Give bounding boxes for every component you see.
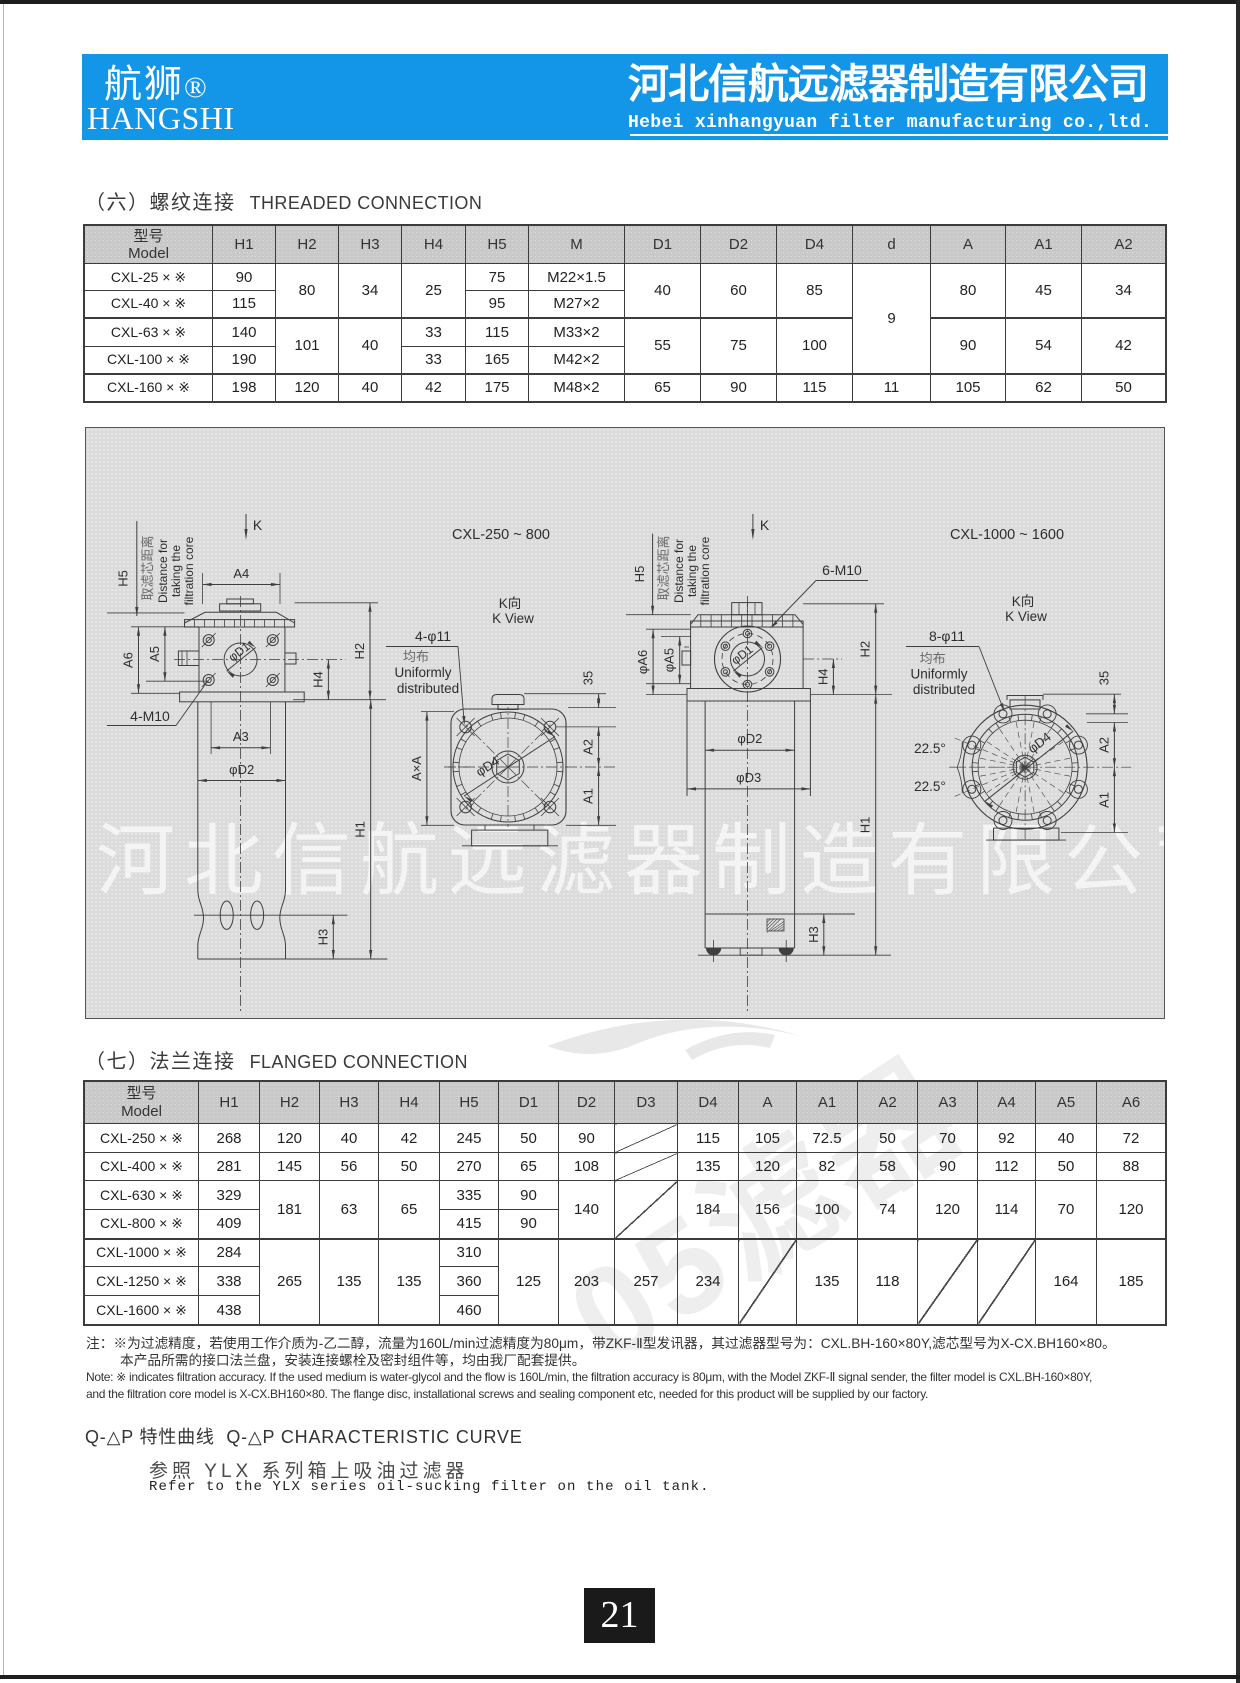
svg-text:A5: A5 (147, 646, 162, 662)
svg-text:A4: A4 (233, 566, 249, 581)
svg-text:Distance for: Distance for (156, 539, 170, 603)
svg-text:K View: K View (1005, 609, 1047, 624)
svg-text:均布: 均布 (920, 651, 946, 666)
svg-text:φD3: φD3 (736, 770, 761, 785)
svg-text:φD2: φD2 (737, 731, 762, 746)
svg-text:A1: A1 (581, 788, 596, 804)
svg-text:Distance for: Distance for (672, 539, 686, 603)
svg-text:A1: A1 (1096, 792, 1111, 808)
svg-text:H4: H4 (310, 671, 325, 688)
svg-text:taking the: taking the (169, 545, 183, 597)
svg-text:φD4: φD4 (1025, 729, 1054, 756)
svg-text:H5: H5 (632, 566, 647, 583)
svg-text:4-M10: 4-M10 (130, 708, 170, 724)
svg-text:H2: H2 (352, 643, 367, 660)
svg-text:K View: K View (492, 611, 534, 626)
svg-text:4-φ11: 4-φ11 (415, 628, 451, 644)
svg-text:φA6: φA6 (635, 650, 650, 674)
svg-text:22.5°: 22.5° (914, 779, 946, 794)
svg-text:distributed: distributed (913, 682, 975, 697)
svg-text:A×A: A×A (409, 756, 424, 781)
svg-text:均布: 均布 (403, 649, 429, 664)
svg-text:A3: A3 (233, 729, 249, 744)
svg-text:H2: H2 (858, 641, 873, 658)
svg-text:35: 35 (581, 671, 596, 685)
svg-text:Uniformly: Uniformly (910, 667, 967, 682)
svg-text:H5: H5 (116, 570, 131, 587)
svg-text:取滤芯距离: 取滤芯距离 (140, 535, 155, 600)
svg-text:取滤芯距离: 取滤芯距离 (656, 535, 671, 600)
svg-text:H1: H1 (858, 817, 873, 834)
svg-text:35: 35 (1096, 671, 1111, 685)
svg-text:filtration core: filtration core (182, 536, 196, 605)
svg-text:H3: H3 (806, 926, 821, 943)
svg-text:H3: H3 (315, 929, 330, 946)
svg-text:Uniformly: Uniformly (394, 665, 451, 680)
svg-text:A6: A6 (121, 652, 136, 668)
svg-text:A2: A2 (1096, 737, 1111, 753)
svg-text:K向: K向 (499, 596, 522, 611)
svg-text:φA5: φA5 (662, 648, 677, 672)
svg-text:A2: A2 (581, 739, 596, 755)
svg-text:K: K (760, 517, 770, 533)
svg-text:H1: H1 (353, 821, 368, 838)
svg-text:CXL-250 ~ 800: CXL-250 ~ 800 (452, 527, 550, 543)
svg-text:6-M10: 6-M10 (822, 562, 862, 578)
svg-text:φD2: φD2 (229, 762, 254, 777)
svg-text:CXL-1000 ~ 1600: CXL-1000 ~ 1600 (950, 527, 1064, 543)
svg-text:K向: K向 (1012, 594, 1035, 609)
svg-text:K: K (253, 517, 263, 533)
svg-text:8-φ11: 8-φ11 (929, 628, 965, 644)
svg-text:taking the: taking the (685, 545, 699, 597)
svg-text:22.5°: 22.5° (914, 741, 946, 756)
svg-text:H4: H4 (815, 668, 830, 685)
svg-text:filtration core: filtration core (698, 536, 712, 605)
svg-text:distributed: distributed (397, 681, 459, 696)
